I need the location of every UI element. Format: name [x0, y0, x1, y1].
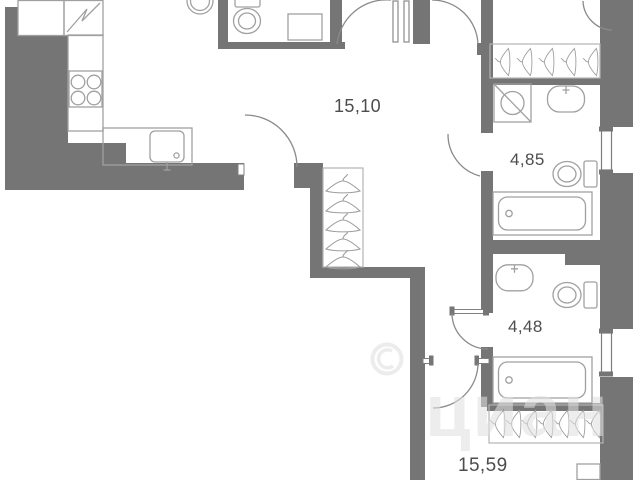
- room-area-label-bathroom-upper: 4,85: [510, 150, 545, 170]
- room-area-label-bathroom-lower: 4,48: [508, 317, 543, 337]
- floor-plan: циан циан 15,10 4,85 4,48 15,59: [0, 0, 640, 480]
- room-area-label-kitchen-living: 15,10: [334, 96, 381, 117]
- watermark: циан циан: [0, 0, 640, 480]
- room-area-label-room-lower: 15,59: [458, 455, 508, 477]
- cian-logo-icon: [373, 345, 402, 374]
- watermark-text: циан: [425, 369, 610, 452]
